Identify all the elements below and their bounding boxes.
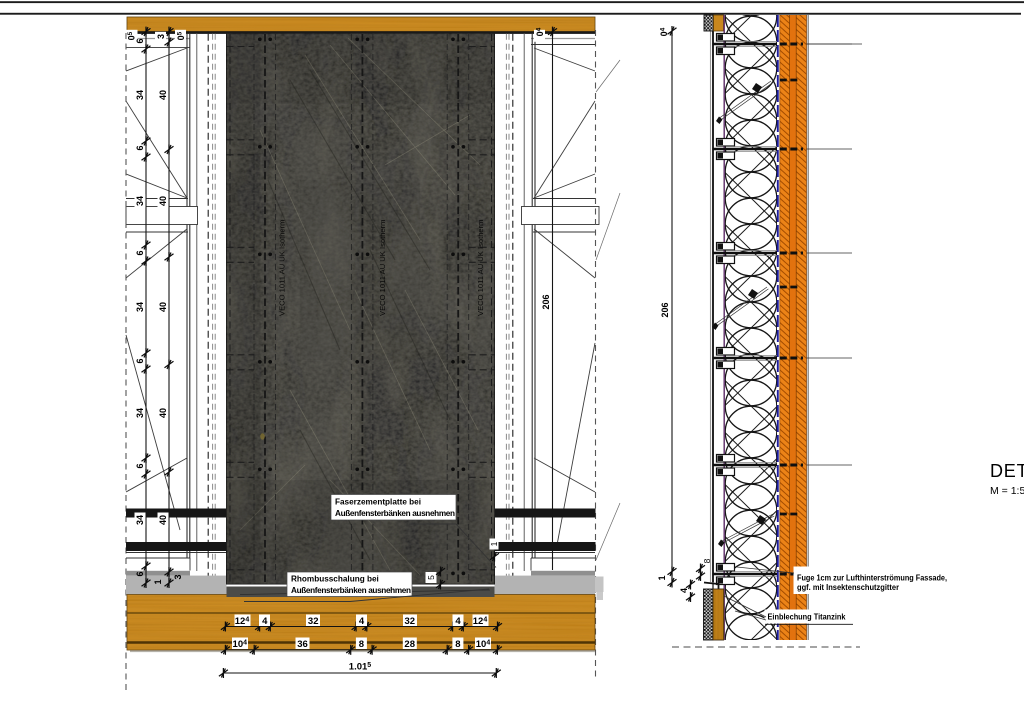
svg-text:34: 34 bbox=[135, 515, 145, 525]
svg-text:6: 6 bbox=[135, 145, 145, 150]
svg-text:6: 6 bbox=[135, 571, 145, 576]
svg-text:206: 206 bbox=[660, 302, 670, 317]
svg-text:8: 8 bbox=[702, 558, 712, 563]
svg-text:6: 6 bbox=[135, 463, 145, 468]
svg-text:ggf. mit Insektenschutzgitter: ggf. mit Insektenschutzgitter bbox=[797, 583, 900, 592]
svg-text:M = 1:5: M = 1:5 bbox=[990, 485, 1024, 497]
svg-text:6: 6 bbox=[135, 358, 145, 363]
svg-text:Fuge 1cm zur Lufthinterströmun: Fuge 1cm zur Lufthinterströmung Fassade, bbox=[797, 574, 947, 583]
svg-text:6: 6 bbox=[135, 250, 145, 255]
svg-text:28: 28 bbox=[404, 639, 415, 650]
svg-text:3: 3 bbox=[173, 574, 183, 579]
svg-text:1: 1 bbox=[153, 579, 163, 584]
svg-text:VECO 1011 AU UK Isotherm: VECO 1011 AU UK Isotherm bbox=[378, 219, 387, 316]
svg-text:34: 34 bbox=[135, 302, 145, 312]
svg-text:1: 1 bbox=[657, 575, 667, 580]
svg-text:40: 40 bbox=[158, 515, 168, 525]
svg-text:34: 34 bbox=[135, 408, 145, 418]
svg-text:40: 40 bbox=[158, 408, 168, 418]
svg-text:Außenfensterbänken ausnehmen: Außenfensterbänken ausnehmen bbox=[335, 509, 455, 518]
svg-text:8: 8 bbox=[359, 639, 364, 650]
svg-text:VECO 1011 AU UK Isotherm: VECO 1011 AU UK Isotherm bbox=[278, 219, 287, 316]
svg-text:40: 40 bbox=[158, 302, 168, 312]
svg-text:Einblechung Titanzink: Einblechung Titanzink bbox=[768, 613, 846, 622]
svg-text:6: 6 bbox=[135, 38, 145, 43]
svg-text:206: 206 bbox=[541, 294, 551, 309]
svg-text:Rhombusschalung bei: Rhombusschalung bei bbox=[291, 575, 379, 584]
svg-text:1: 1 bbox=[489, 541, 499, 546]
svg-text:Faserzementplatte bei: Faserzementplatte bei bbox=[335, 498, 421, 507]
svg-text:4: 4 bbox=[359, 616, 365, 627]
svg-text:4: 4 bbox=[262, 616, 268, 627]
svg-text:5: 5 bbox=[426, 575, 436, 580]
svg-text:4: 4 bbox=[455, 616, 461, 627]
svg-text:8: 8 bbox=[455, 639, 460, 650]
svg-text:4: 4 bbox=[679, 588, 689, 593]
svg-text:3: 3 bbox=[156, 34, 166, 39]
svg-text:40: 40 bbox=[158, 90, 168, 100]
svg-text:VECO 1011 AU UK Isotherm: VECO 1011 AU UK Isotherm bbox=[476, 219, 485, 316]
svg-text:32: 32 bbox=[405, 616, 416, 627]
svg-text:40: 40 bbox=[158, 196, 168, 206]
svg-text:34: 34 bbox=[135, 196, 145, 206]
svg-text:Außenfensterbänken ausnehmen: Außenfensterbänken ausnehmen bbox=[291, 586, 411, 595]
svg-text:32: 32 bbox=[308, 616, 319, 627]
svg-text:34: 34 bbox=[135, 90, 145, 100]
svg-text:36: 36 bbox=[297, 639, 308, 650]
svg-text:DETAIL: DETAIL bbox=[990, 461, 1024, 481]
